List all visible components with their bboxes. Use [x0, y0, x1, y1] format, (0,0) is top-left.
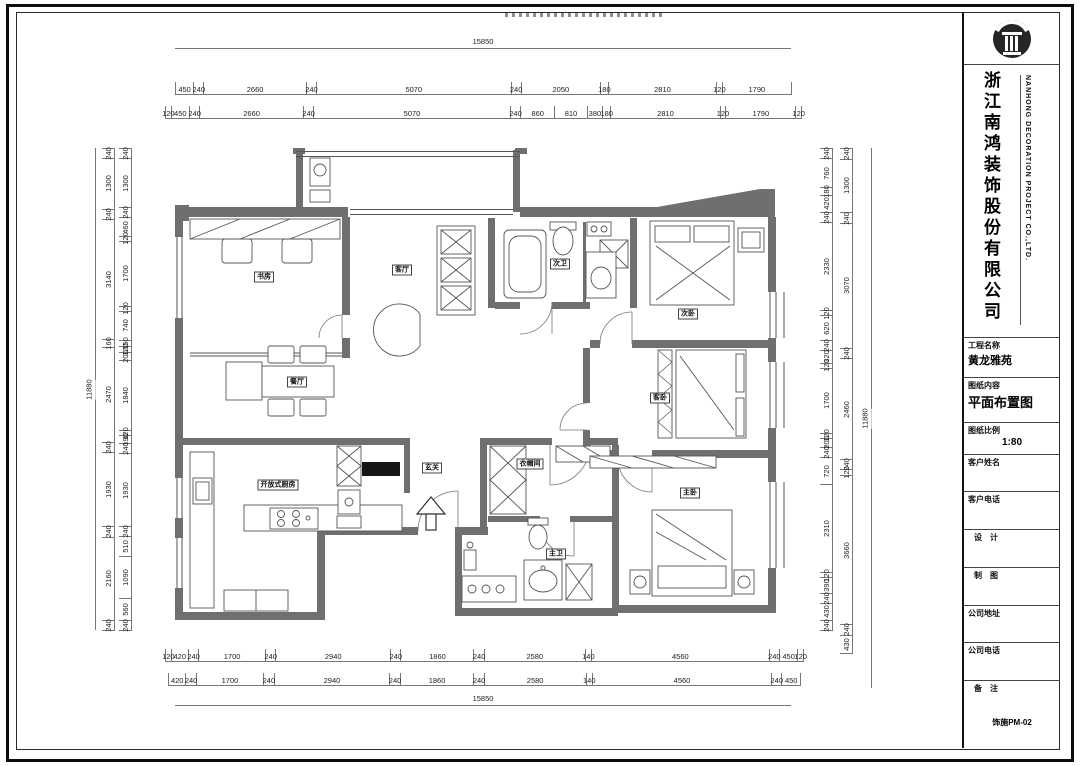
room-label: 衣帽间	[517, 459, 544, 470]
dim-bottom-total: 15850	[175, 694, 791, 706]
room-label: 玄关	[422, 463, 442, 474]
designer-label: 设 计	[968, 532, 1056, 543]
field-client-name: 客户姓名	[964, 455, 1060, 492]
company-phone-label: 公司电话	[968, 645, 1056, 656]
room-label: 开放式厨房	[258, 480, 299, 491]
dim-bottom-row1: 1204202401700240294024018602402580140456…	[165, 649, 804, 662]
dim-right-outer: 2401300240307024024602401203660240430	[840, 148, 853, 654]
field-client-phone: 客户电话	[964, 492, 1060, 530]
furniture	[190, 158, 764, 611]
room-label: 主卧	[680, 488, 700, 499]
client-phone-label: 客户电话	[968, 494, 1056, 505]
company-addr-label: 公司地址	[968, 608, 1056, 619]
field-content: 图纸内容 平面布置图	[964, 378, 1060, 423]
company-name-section: 浙江南鸿装饰股份有限公司 NANHONG DECORATION PROJECT …	[964, 65, 1060, 338]
scale-label: 图纸比例	[968, 425, 1056, 436]
field-drafter: 制 图	[964, 568, 1060, 606]
floor-plan: 书房餐厅客厅次卫次卧客卧开放式厨房玄关衣帽间主卫主卧	[160, 140, 810, 635]
dim-left-inner: 2401300240460120170012074015012020018401…	[119, 148, 132, 631]
dark-label	[362, 462, 400, 476]
entry-arrow	[417, 497, 445, 530]
field-company-addr: 公司地址	[964, 606, 1060, 643]
room-label: 餐厅	[287, 377, 307, 388]
nanhong-column-logo-icon	[990, 16, 1034, 60]
company-name-en: NANHONG DECORATION PROJECT CO.,LTD.	[1020, 75, 1031, 325]
content-value: 平面布置图	[968, 392, 1056, 411]
room-label: 主卫	[546, 549, 566, 560]
company-name-cn: 浙江南鸿装饰股份有限公司	[978, 71, 1003, 323]
dim-top-row1: 45024026602405070240205018028101201790	[175, 82, 792, 95]
project-value: 黄龙雅苑	[968, 352, 1056, 368]
scale-value: 1:80	[968, 437, 1056, 448]
floor-plan-svg	[160, 140, 810, 635]
dim-right-total: 11880	[860, 148, 872, 688]
dim-right-inner: 2407601804202402330120620240320120170012…	[820, 148, 833, 631]
field-project: 工程名称 黄龙雅苑	[964, 338, 1060, 378]
drawing-number: 饰施PM-02	[964, 717, 1060, 728]
room-label: 书房	[254, 272, 274, 283]
room-label: 次卫	[550, 259, 570, 270]
drafter-label: 制 图	[968, 570, 1056, 581]
drawing-sheet: 15850 4502402660240507024020501802810120…	[0, 0, 1080, 766]
dim-top-row2: 1204502402660240507024086081038018028101…	[165, 106, 802, 119]
room-label: 次卧	[678, 309, 698, 320]
remark-label: 备 注	[968, 683, 1056, 694]
dim-top-total: 15850	[175, 37, 791, 49]
field-designer: 设 计	[964, 530, 1060, 568]
dim-left-outer: 24013002403140160247024019302402160240	[102, 148, 115, 631]
company-logo	[964, 12, 1060, 65]
dim-left-total: 11880	[84, 148, 96, 630]
room-label: 客厅	[392, 265, 412, 276]
project-label: 工程名称	[968, 340, 1056, 351]
field-remark: 备 注 饰施PM-02	[964, 681, 1060, 748]
field-company-phone: 公司电话	[964, 643, 1060, 681]
dim-bottom-row2: 4202401700240294024018602402580140456024…	[168, 673, 801, 686]
client-name-label: 客户姓名	[968, 457, 1056, 468]
room-label: 客卧	[650, 393, 670, 404]
title-block: 浙江南鸿装饰股份有限公司 NANHONG DECORATION PROJECT …	[962, 12, 1060, 748]
field-scale: 图纸比例 1:80	[964, 423, 1060, 455]
cropped-edge-text	[505, 12, 665, 17]
content-label: 图纸内容	[968, 380, 1056, 391]
